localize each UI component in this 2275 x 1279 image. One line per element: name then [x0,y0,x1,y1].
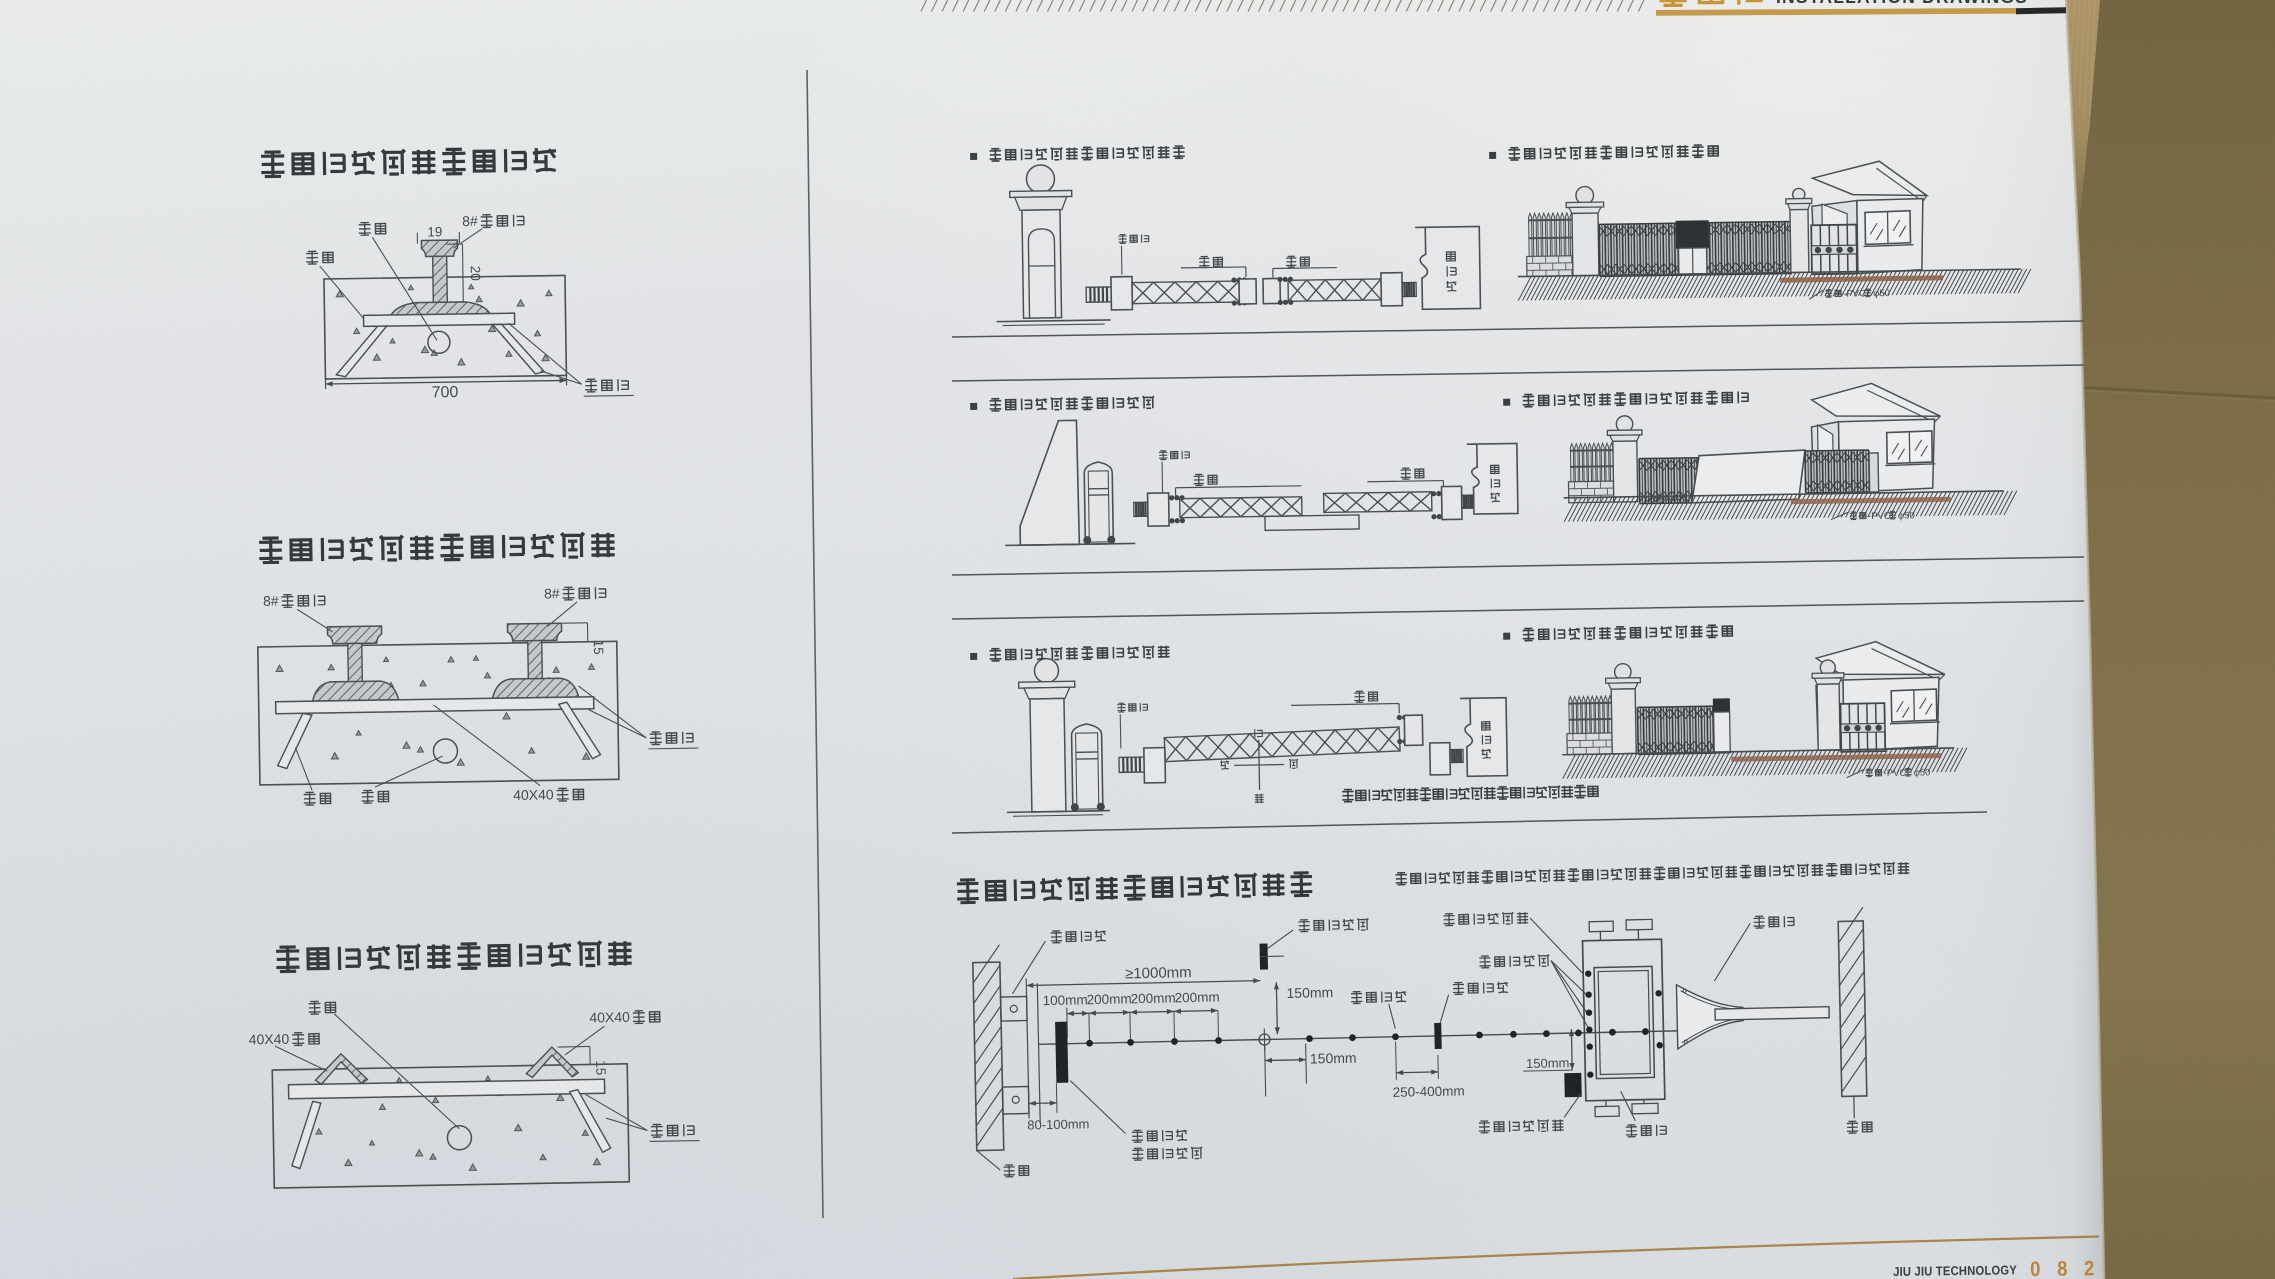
svg-text:082: 082 [2030,1257,2111,1279]
svg-text:JIU JIU TECHNOLOGY: JIU JIU TECHNOLOGY [1893,1263,2017,1279]
